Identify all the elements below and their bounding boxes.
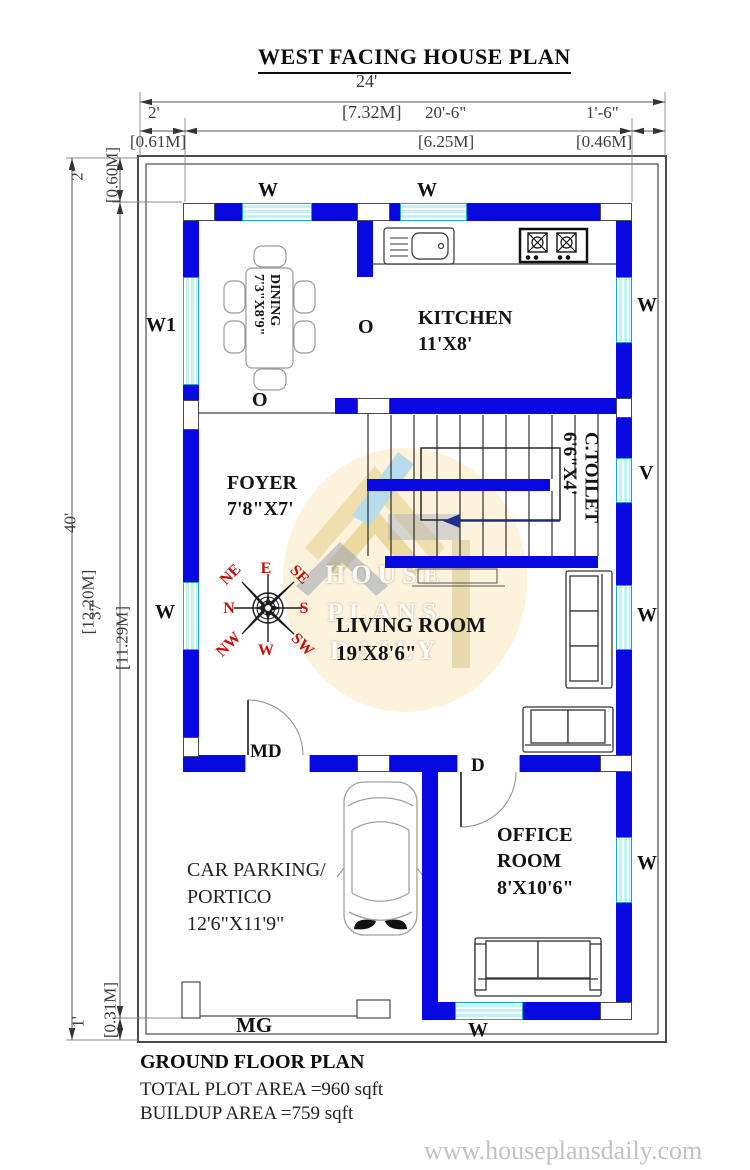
- wall-segment: [616, 221, 632, 277]
- dim-left-top-m: [0.60M]: [104, 147, 121, 203]
- main-gate: [182, 982, 390, 1018]
- window-label-right-living: W: [637, 605, 657, 625]
- wall-segment: [335, 398, 357, 414]
- car: [337, 782, 424, 935]
- wall-segment: [422, 772, 438, 1002]
- column-block: [600, 1002, 632, 1020]
- wall-segment: [312, 203, 357, 221]
- compass-north: N: [223, 600, 235, 618]
- room-label-living: LIVING ROOM 19'X8'6": [336, 612, 486, 667]
- column-block: [357, 755, 390, 772]
- room-size: 7'8"X7': [227, 496, 297, 522]
- stair-rail-wall: [367, 479, 550, 491]
- window-label-right-office: W: [637, 853, 657, 873]
- window-label-w1: W1: [146, 315, 176, 335]
- dim-top-overall-ft: 24': [356, 72, 377, 90]
- wall-segment: [520, 755, 600, 772]
- dim-top-mid-ft: 20'-6": [425, 104, 466, 121]
- main-door-label: MD: [250, 742, 282, 761]
- gas-stove: [520, 229, 587, 262]
- dim-top-left-ft: 2': [148, 104, 160, 121]
- column-block: [357, 398, 390, 414]
- column-block: [616, 398, 632, 418]
- wall-segment: [357, 221, 373, 277]
- room-name: CAR PARKING/: [187, 857, 326, 884]
- compass-south: S: [300, 600, 309, 618]
- room-name: C.TOILET: [580, 432, 602, 523]
- ventilator-window: [616, 458, 632, 503]
- room-label-foyer: FOYER 7'8"X7': [227, 470, 297, 523]
- dim-top-overall-m: [7.32M]: [342, 103, 402, 121]
- dim-top-right-ft: 1'-6": [586, 104, 619, 121]
- room-label-parking: CAR PARKING/ PORTICO 12'6"X11'9": [187, 857, 326, 938]
- window: [455, 1002, 523, 1020]
- room-name: PORTICO: [187, 884, 326, 911]
- dim-top-mid-m: [6.25M]: [418, 133, 474, 150]
- window-label-top-1: W: [258, 180, 278, 200]
- wall-segment: [215, 203, 242, 221]
- window: [616, 277, 632, 343]
- opening-label-kitchen: O: [358, 317, 374, 337]
- compass-east: E: [261, 560, 272, 578]
- column-block: [183, 400, 199, 430]
- wall-segment: [616, 418, 632, 458]
- office-door-swing: [457, 755, 520, 827]
- dim-left-mid-m: [11.29M]: [114, 606, 131, 670]
- room-label-ctoilet: C.TOILET 6'6"X4': [558, 432, 602, 523]
- room-label-kitchen: KITCHEN 11'X8': [418, 305, 512, 358]
- wall-segment: [183, 221, 199, 277]
- column-block: [183, 737, 199, 757]
- room-name: FOYER: [227, 470, 297, 496]
- window-label-left: W: [155, 602, 175, 622]
- dim-left-overall-ft: 40': [62, 513, 79, 533]
- buildup-area-text: BUILDUP AREA =759 sqft: [140, 1104, 353, 1123]
- wall-segment: [183, 385, 199, 400]
- room-name: LIVING ROOM: [336, 612, 486, 640]
- dim-left-mid-ft: 37': [87, 600, 104, 620]
- door-label: D: [471, 756, 485, 775]
- wall-segment: [385, 556, 598, 568]
- wall-segment: [390, 203, 400, 221]
- office-sofa: [475, 938, 601, 996]
- compass-west: W: [258, 642, 274, 660]
- window-label-right-kitchen: W: [637, 295, 657, 315]
- room-size: 7'3"X8'9": [250, 274, 266, 335]
- room-size: 8'X10'6": [497, 875, 574, 901]
- dim-left-bottom-m: [0.31M]: [102, 982, 119, 1038]
- wall-segment: [183, 430, 199, 582]
- room-size: 19'X8'6": [336, 640, 486, 668]
- wall-segment: [183, 757, 199, 772]
- window-label-top-2: W: [417, 180, 437, 200]
- page-title: WEST FACING HOUSE PLAN: [258, 44, 571, 74]
- wall-segment: [616, 343, 632, 398]
- room-size: 6'6"X4': [558, 432, 580, 523]
- wall-segment: [183, 650, 199, 737]
- window: [242, 203, 312, 221]
- ventilator-label: V: [639, 463, 653, 483]
- window: [183, 582, 199, 650]
- tv-unit: [412, 569, 505, 586]
- dim-left-top-ft: 2': [69, 169, 86, 181]
- window-label-bottom: W: [468, 1020, 488, 1040]
- column-block: [357, 203, 390, 221]
- room-name: DINING: [266, 274, 282, 335]
- wall-segment: [390, 755, 457, 772]
- column-block: [600, 203, 632, 221]
- room-name: ROOM: [497, 848, 574, 874]
- sofa-two-seater: [523, 707, 613, 752]
- column-block: [183, 203, 215, 221]
- dim-top-left-m: [0.61M]: [130, 133, 186, 150]
- room-name: OFFICE: [497, 822, 574, 848]
- dim-top-right-m: [0.46M]: [576, 133, 632, 150]
- wall-segment: [199, 755, 245, 772]
- wall-segment: [390, 398, 616, 414]
- window: [183, 277, 199, 385]
- plan-heading: GROUND FLOOR PLAN: [140, 1052, 364, 1072]
- wall-segment: [523, 1002, 600, 1020]
- wall-segment: [616, 650, 632, 755]
- plot-area-text: TOTAL PLOT AREA =960 sqft: [140, 1080, 383, 1099]
- room-label-dining: DINING 7'3"X8'9": [250, 274, 282, 335]
- room-size: 11'X8': [418, 331, 512, 357]
- column-block: [600, 755, 632, 772]
- floor-plan-canvas: WEST FACING HOUSE PLAN HOUSE PLANS DAILY: [0, 0, 750, 1170]
- opening-label-dining: O: [252, 390, 268, 410]
- wall-segment: [616, 772, 632, 837]
- main-gate-label: MG: [236, 1015, 272, 1036]
- window: [400, 203, 467, 221]
- window: [616, 585, 632, 650]
- room-label-office: OFFICE ROOM 8'X10'6": [497, 822, 574, 901]
- kitchen-sink: [384, 228, 454, 264]
- window: [616, 837, 632, 903]
- room-name: KITCHEN: [418, 305, 512, 331]
- wall-segment: [310, 755, 357, 772]
- room-size: 12'6"X11'9": [187, 911, 326, 938]
- dim-left-bottom-ft: 1': [70, 1016, 87, 1028]
- sofa-three-seater: [566, 571, 612, 688]
- wall-segment: [422, 1002, 455, 1020]
- wall-segment: [467, 203, 600, 221]
- wall-segment: [616, 503, 632, 585]
- website-link[interactable]: www.houseplansdaily.com: [424, 1136, 702, 1166]
